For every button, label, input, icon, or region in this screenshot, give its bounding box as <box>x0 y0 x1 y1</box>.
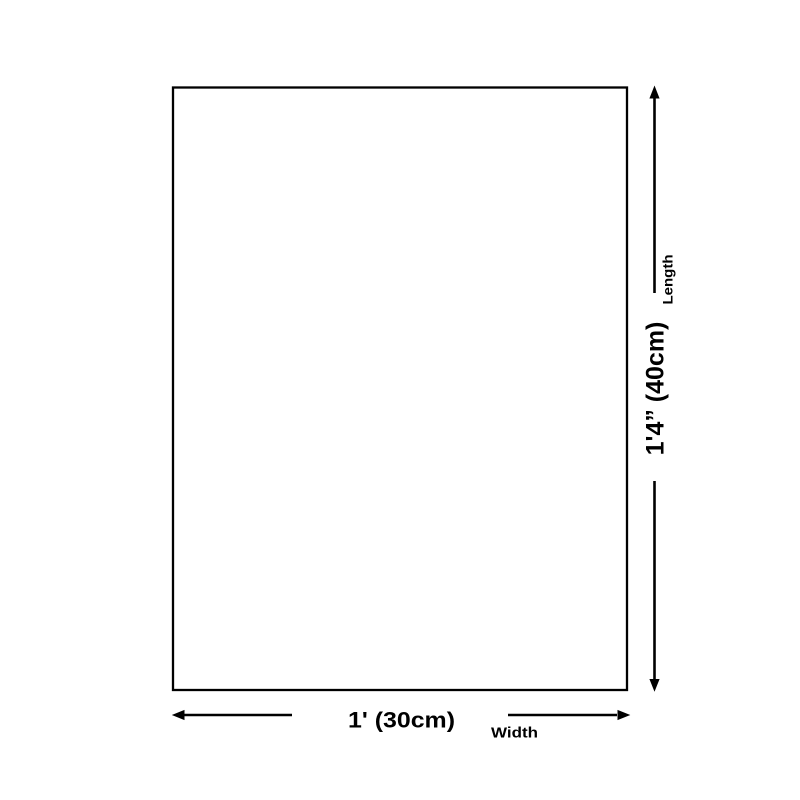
svg-text:Width: Width <box>491 726 538 742</box>
svg-text:1' (30cm): 1' (30cm) <box>348 708 455 733</box>
svg-text:Length: Length <box>660 255 676 305</box>
svg-text:1'4” (40cm): 1'4” (40cm) <box>642 322 670 456</box>
